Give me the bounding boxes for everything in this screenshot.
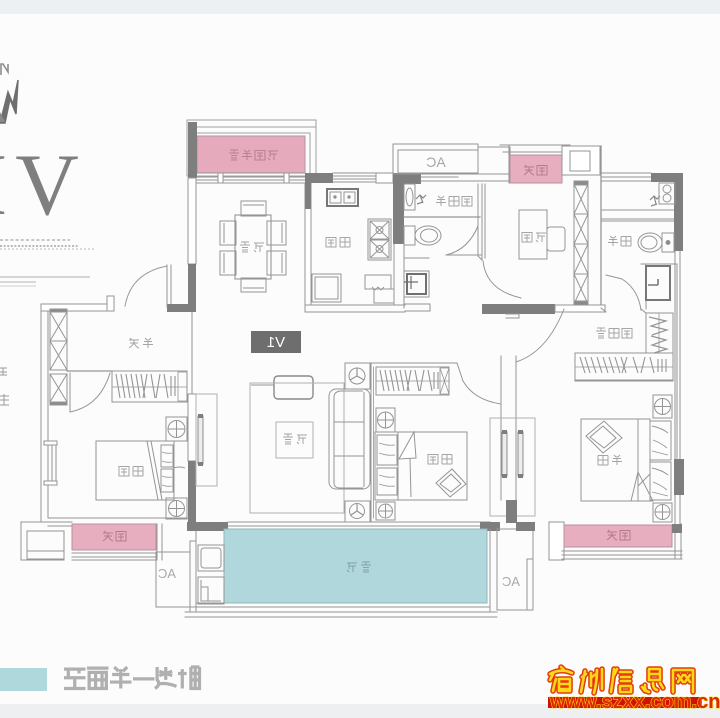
svg-text:V1: V1 [267, 334, 285, 351]
svg-text:AC: AC [426, 154, 445, 170]
svg-text:IV: IV [0, 137, 87, 234]
svg-text:AC: AC [158, 566, 176, 581]
svg-text:www.szxx.com.cn: www.szxx.com.cn [549, 691, 720, 713]
svg-text:AC: AC [502, 574, 520, 589]
